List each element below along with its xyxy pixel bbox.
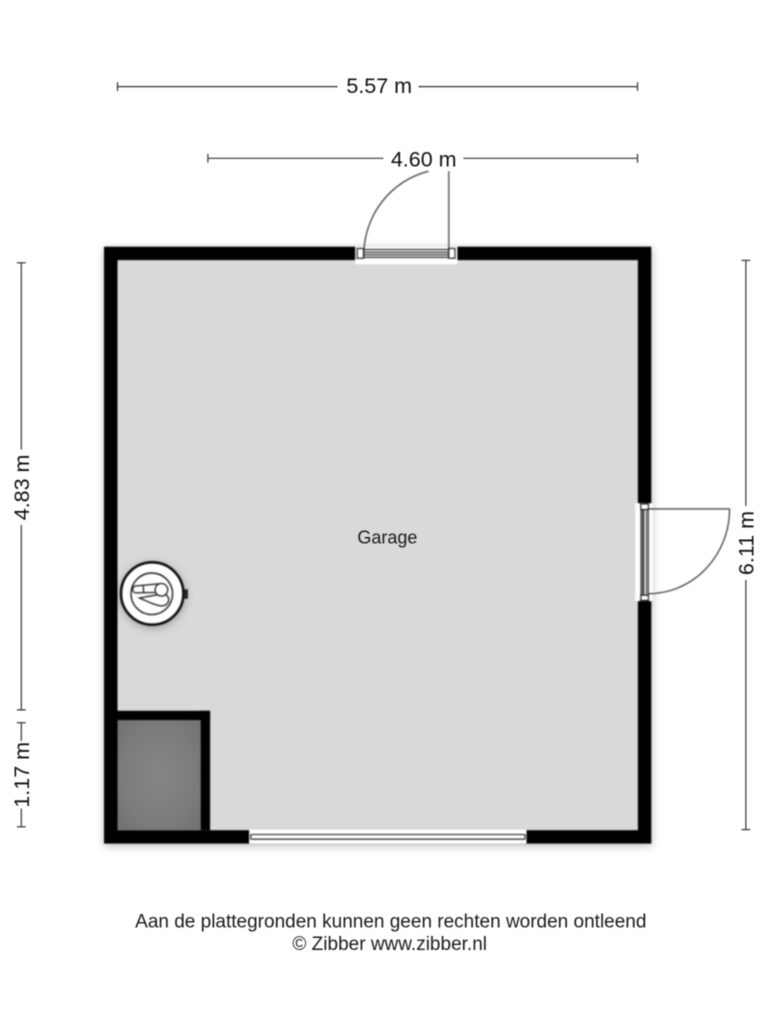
svg-text:6.11 m: 6.11 m <box>734 511 758 575</box>
svg-text:Aan de plattegronden kunnen ge: Aan de plattegronden kunnen geen rechten… <box>135 911 646 932</box>
svg-text:5.57 m: 5.57 m <box>346 74 412 98</box>
svg-text:Garage: Garage <box>357 528 417 548</box>
svg-text:4.83 m: 4.83 m <box>10 455 34 521</box>
svg-text:4.60 m: 4.60 m <box>391 147 457 171</box>
svg-text:1.17 m: 1.17 m <box>10 742 34 808</box>
svg-text:© Zibber www.zibber.nl: © Zibber www.zibber.nl <box>292 934 487 955</box>
